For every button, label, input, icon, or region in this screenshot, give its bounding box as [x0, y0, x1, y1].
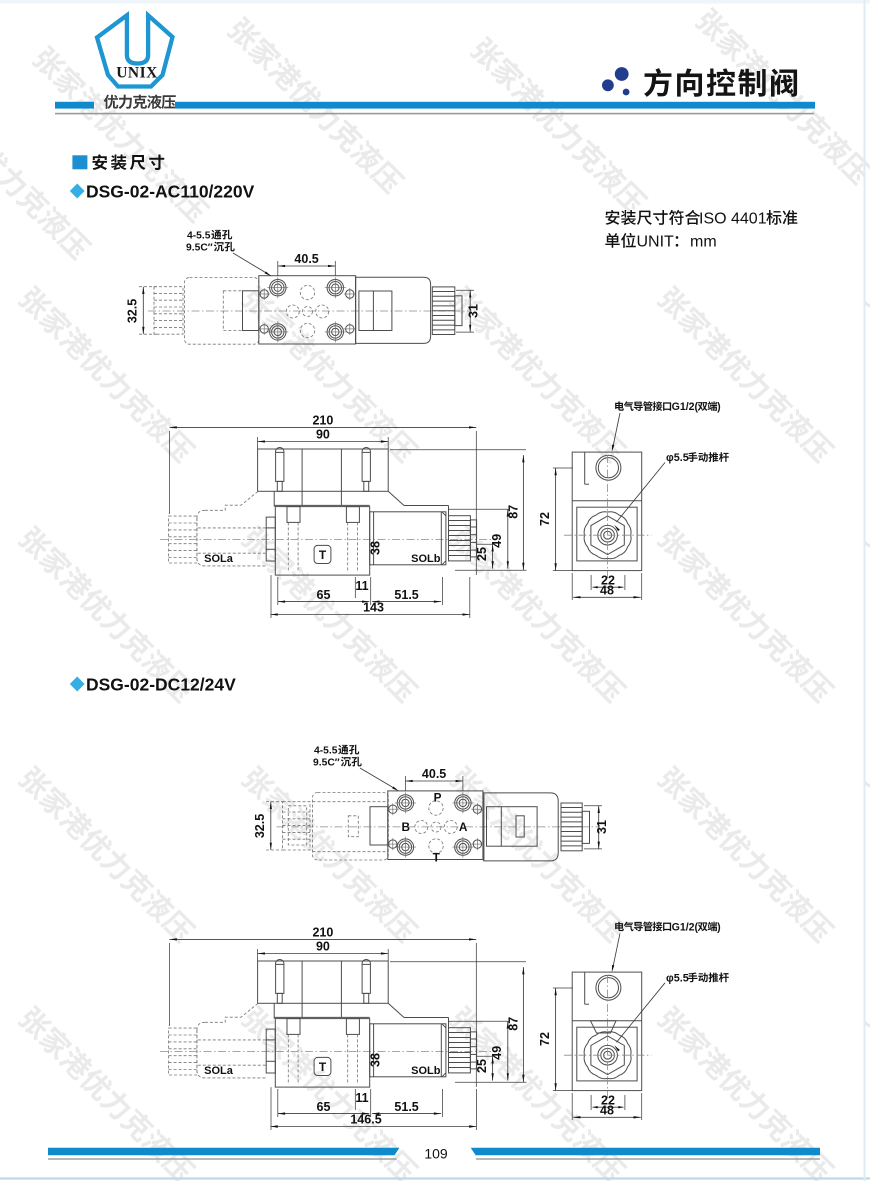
svg-text:φ5.5: φ5.5 [666, 972, 689, 984]
svg-text:87: 87 [507, 1017, 521, 1031]
svg-text:72: 72 [538, 512, 552, 526]
svg-text:51.5: 51.5 [394, 588, 418, 602]
svg-text:72: 72 [538, 1032, 552, 1046]
svg-text:48: 48 [600, 1104, 614, 1118]
svg-text:ISO 4401: ISO 4401 [699, 211, 767, 228]
svg-text:31: 31 [595, 820, 609, 834]
svg-text:P: P [434, 791, 442, 805]
svg-text:B: B [402, 820, 411, 834]
svg-text:40.5: 40.5 [294, 252, 318, 266]
svg-text:T: T [433, 851, 441, 865]
svg-text:φ5.5: φ5.5 [666, 452, 689, 464]
svg-text:G1/2(: G1/2( [672, 401, 699, 413]
svg-text:40.5: 40.5 [422, 767, 446, 781]
svg-text:T: T [319, 548, 327, 562]
svg-text:32.5: 32.5 [126, 299, 140, 323]
svg-text:SOLa: SOLa [204, 553, 234, 565]
svg-text:109: 109 [424, 1146, 448, 1162]
svg-text:146.5: 146.5 [350, 1113, 381, 1127]
svg-text:DSG-02-DC12/24V: DSG-02-DC12/24V [86, 675, 236, 695]
svg-text:A: A [459, 820, 468, 834]
svg-text:SOLa: SOLa [204, 1065, 234, 1077]
svg-text:48: 48 [600, 584, 614, 598]
svg-text:9.5C″: 9.5C″ [313, 758, 340, 769]
svg-text:32.5: 32.5 [253, 814, 267, 838]
svg-text:11: 11 [355, 579, 368, 593]
svg-text:87: 87 [507, 505, 521, 519]
svg-text:mm: mm [690, 234, 717, 251]
svg-text:UNIX: UNIX [116, 65, 158, 82]
svg-text:51.5: 51.5 [394, 1100, 418, 1114]
svg-text:210: 210 [312, 926, 333, 940]
svg-text:38: 38 [369, 1053, 383, 1067]
svg-text:90: 90 [316, 428, 330, 442]
svg-text:): ) [717, 401, 721, 413]
svg-text:4-5.5: 4-5.5 [314, 746, 338, 757]
svg-text:49: 49 [490, 534, 504, 548]
svg-text:G1/2(: G1/2( [672, 921, 699, 933]
svg-text:65: 65 [317, 1100, 331, 1114]
svg-text:4-5.5: 4-5.5 [187, 231, 211, 242]
svg-text:49: 49 [490, 1046, 504, 1060]
svg-text:25: 25 [475, 547, 489, 561]
svg-text:SOLb: SOLb [411, 553, 441, 565]
svg-text:210: 210 [312, 414, 333, 428]
svg-text:11: 11 [355, 1091, 368, 1105]
svg-text:UNIT: UNIT [637, 234, 675, 251]
svg-text:): ) [717, 921, 721, 933]
svg-text:90: 90 [316, 940, 330, 954]
svg-text:143: 143 [363, 601, 384, 615]
svg-text:65: 65 [317, 588, 331, 602]
svg-text:DSG-02-AC110/220V: DSG-02-AC110/220V [86, 182, 255, 202]
svg-text:25: 25 [475, 1059, 489, 1073]
svg-text:9.5C″: 9.5C″ [186, 243, 213, 254]
svg-text:38: 38 [369, 541, 383, 555]
svg-text:31: 31 [467, 304, 481, 318]
svg-text:T: T [319, 1060, 327, 1074]
svg-text:SOLb: SOLb [411, 1065, 441, 1077]
